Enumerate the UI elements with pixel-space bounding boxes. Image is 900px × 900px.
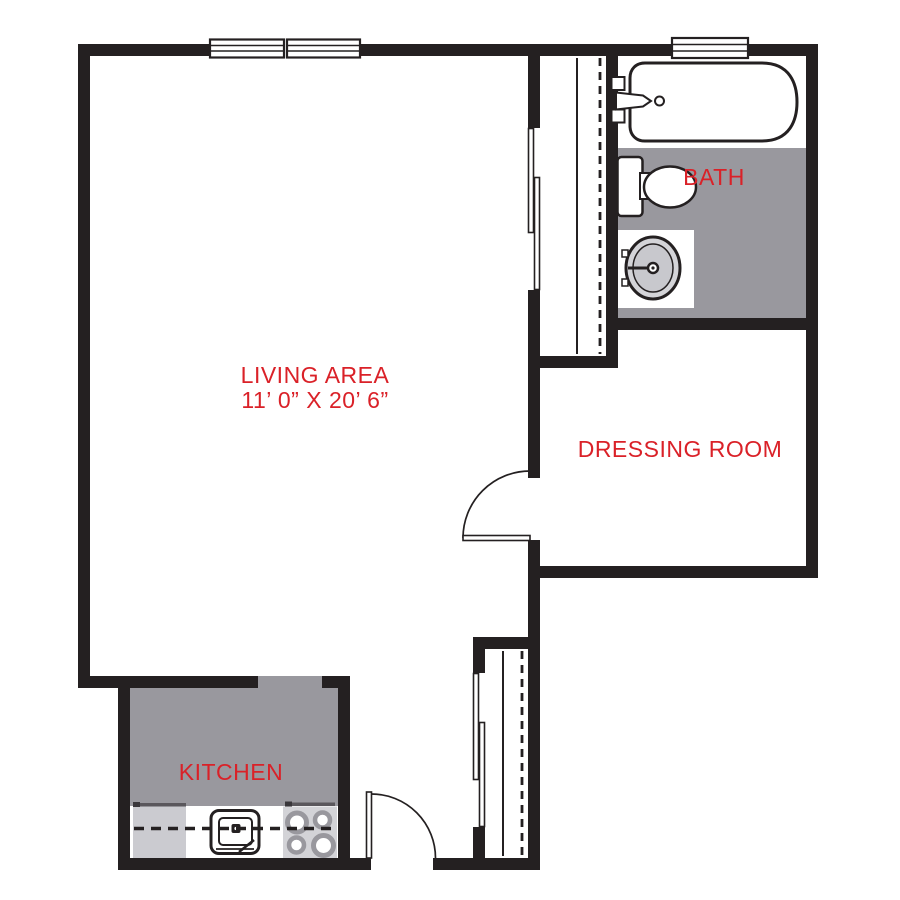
kitchen-sink: [211, 811, 259, 854]
wall-top-living-right: [360, 44, 540, 56]
stove-edge-line: [285, 803, 335, 807]
floor-plan-drawing: LIVING AREA 11’ 0” X 20’ 6” BATH DRESSIN…: [0, 0, 900, 900]
door-leaf: [367, 792, 372, 858]
dressing-room-label: DRESSING ROOM: [578, 436, 783, 462]
wall-lower-closet-left-lower: [473, 827, 485, 870]
door-swing-arc: [463, 471, 530, 538]
tub-handle: [612, 77, 625, 90]
bath-window: [672, 38, 748, 58]
living-window-2: [287, 40, 360, 58]
wall-east-lower: [528, 540, 540, 870]
wall-bottom-right: [433, 858, 540, 870]
kitchen-label: KITCHEN: [179, 759, 283, 785]
wall-top-bath-left: [540, 44, 672, 56]
wall-kitchen-right: [338, 676, 350, 870]
sliding-door-panel: [474, 674, 479, 780]
wall-bath-bottom: [606, 318, 818, 330]
floors: [130, 148, 806, 806]
doors: [367, 471, 531, 858]
sink-handle: [622, 279, 628, 286]
wall-closet-bottom: [528, 356, 618, 368]
wall-kitchen-left: [118, 688, 130, 870]
window-frame: [672, 38, 748, 58]
sink-drain-dot: [651, 266, 654, 269]
toilet-tank: [618, 157, 643, 216]
wall-living-closet-upper: [528, 56, 540, 128]
wall-living-closet-lower: [528, 290, 540, 478]
living-area-dimensions: 11’ 0” X 20’ 6”: [241, 387, 388, 413]
living-area-label: LIVING AREA: [241, 362, 390, 388]
window-frame: [287, 40, 360, 58]
sliding-door-panel: [529, 129, 534, 233]
dressing-room-door: [463, 471, 530, 541]
entry-door: [367, 792, 436, 858]
stove-edge-tab: [285, 802, 292, 807]
wall-dressing-bottom: [540, 566, 818, 578]
wall-lower-closet-left-upper: [473, 637, 485, 673]
tub-handle: [612, 110, 625, 123]
refrigerator-counter: [133, 807, 186, 859]
wall-top-living-left: [78, 44, 210, 56]
stove-burner: [289, 838, 304, 853]
wall-left: [78, 44, 90, 688]
tub-drain: [655, 97, 664, 106]
window-frame: [210, 40, 284, 58]
wall-right: [806, 44, 818, 578]
bath-label: BATH: [683, 164, 745, 190]
stove-burner: [314, 836, 334, 856]
living-window-1: [210, 40, 284, 58]
sliding-door-panel: [480, 723, 485, 827]
stove-burner: [315, 813, 330, 828]
counter-edge-line: [133, 803, 186, 807]
kitchen: [133, 802, 337, 859]
door-leaf: [463, 536, 530, 541]
counter-edge-tab: [133, 802, 140, 807]
wall-kitchen-top: [78, 676, 258, 688]
wall-bottom-left: [118, 858, 371, 870]
floor-plan-page: LIVING AREA 11’ 0” X 20’ 6” BATH DRESSIN…: [0, 0, 900, 900]
lower-closet: [474, 651, 523, 856]
kitchen-floor: [130, 688, 338, 806]
kitchen-opening-floor: [258, 676, 322, 688]
sliding-door-panel: [535, 178, 540, 290]
door-swing-arc: [372, 794, 436, 858]
sink-handle: [622, 250, 628, 257]
